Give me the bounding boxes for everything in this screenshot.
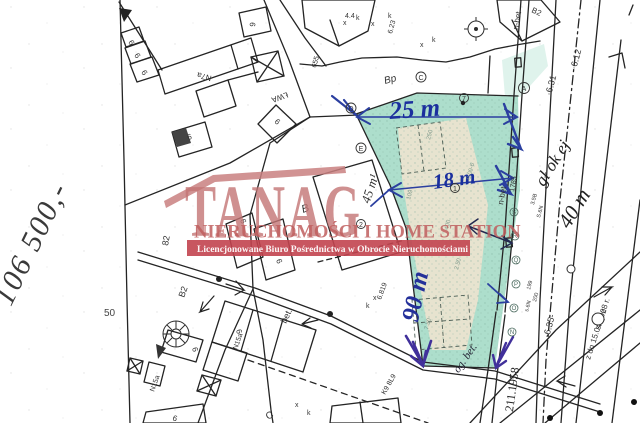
svg-text:S: S xyxy=(512,210,516,216)
svg-text:k: k xyxy=(356,15,360,22)
svg-text:4.4: 4.4 xyxy=(345,13,355,20)
svg-text:C: C xyxy=(418,75,423,82)
svg-text:x: x xyxy=(371,21,375,28)
svg-text:k: k xyxy=(307,410,311,417)
svg-text:x: x xyxy=(373,295,377,302)
svg-text:x: x xyxy=(295,402,299,409)
svg-text:82: 82 xyxy=(160,235,172,247)
svg-text:k: k xyxy=(388,13,392,20)
svg-text:k: k xyxy=(432,37,436,44)
svg-text:D: D xyxy=(348,106,353,113)
svg-text:NIERUCHOMOŚCI I HOME STATION: NIERUCHOMOŚCI I HOME STATION xyxy=(194,220,521,242)
svg-text:Q: Q xyxy=(514,258,519,264)
svg-text:N: N xyxy=(510,330,514,336)
svg-text:x: x xyxy=(420,42,424,49)
svg-text:k: k xyxy=(366,303,370,310)
svg-text:O: O xyxy=(512,306,517,312)
svg-text:P: P xyxy=(514,282,518,288)
svg-text:1: 1 xyxy=(453,186,457,193)
svg-text:E: E xyxy=(359,146,364,153)
svg-text:x: x xyxy=(343,20,347,27)
svg-text:Licencjonowane Biuro Pośrednic: Licencjonowane Biuro Pośrednictwa w Obro… xyxy=(197,245,468,255)
svg-text:25 m: 25 m xyxy=(388,95,441,126)
svg-text:50: 50 xyxy=(104,308,116,319)
svg-text:A: A xyxy=(522,86,527,93)
